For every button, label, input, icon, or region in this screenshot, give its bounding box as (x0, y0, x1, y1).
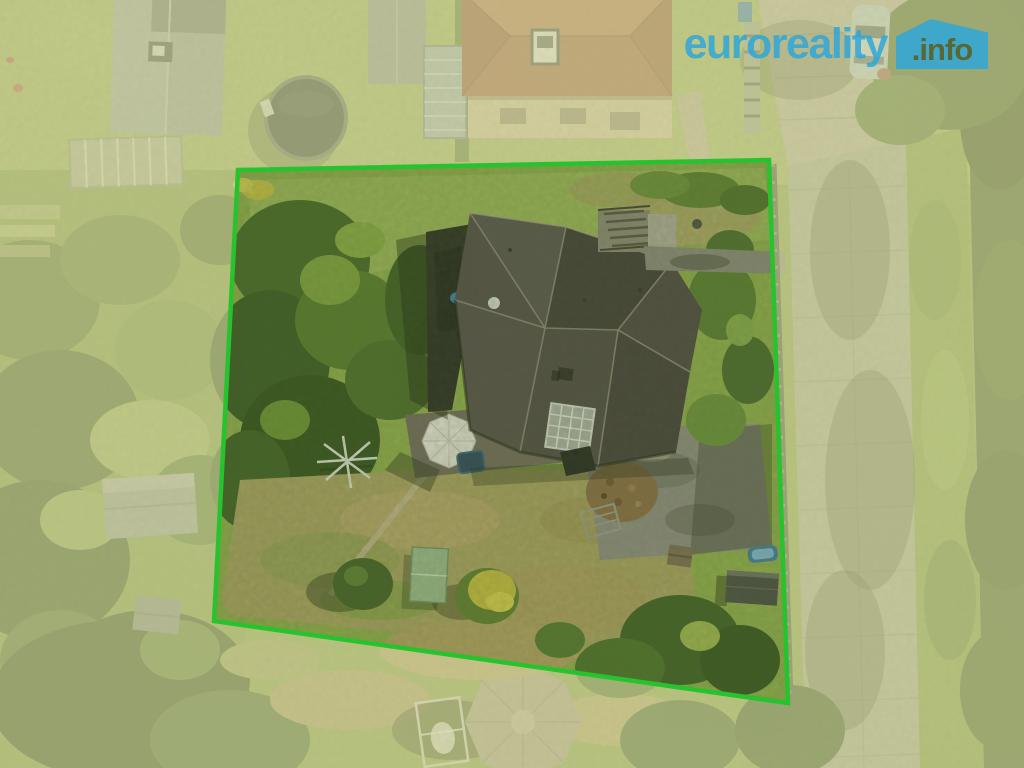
aerial-photo: euroreality .info (0, 0, 1024, 768)
watermark-logo: euroreality .info (684, 19, 988, 69)
watermark-brand-text: euroreality (684, 23, 887, 66)
house-badge-icon: .info (896, 19, 988, 69)
watermark-suffix-text: .info (912, 34, 972, 69)
aerial-photo-canvas (0, 0, 1024, 768)
